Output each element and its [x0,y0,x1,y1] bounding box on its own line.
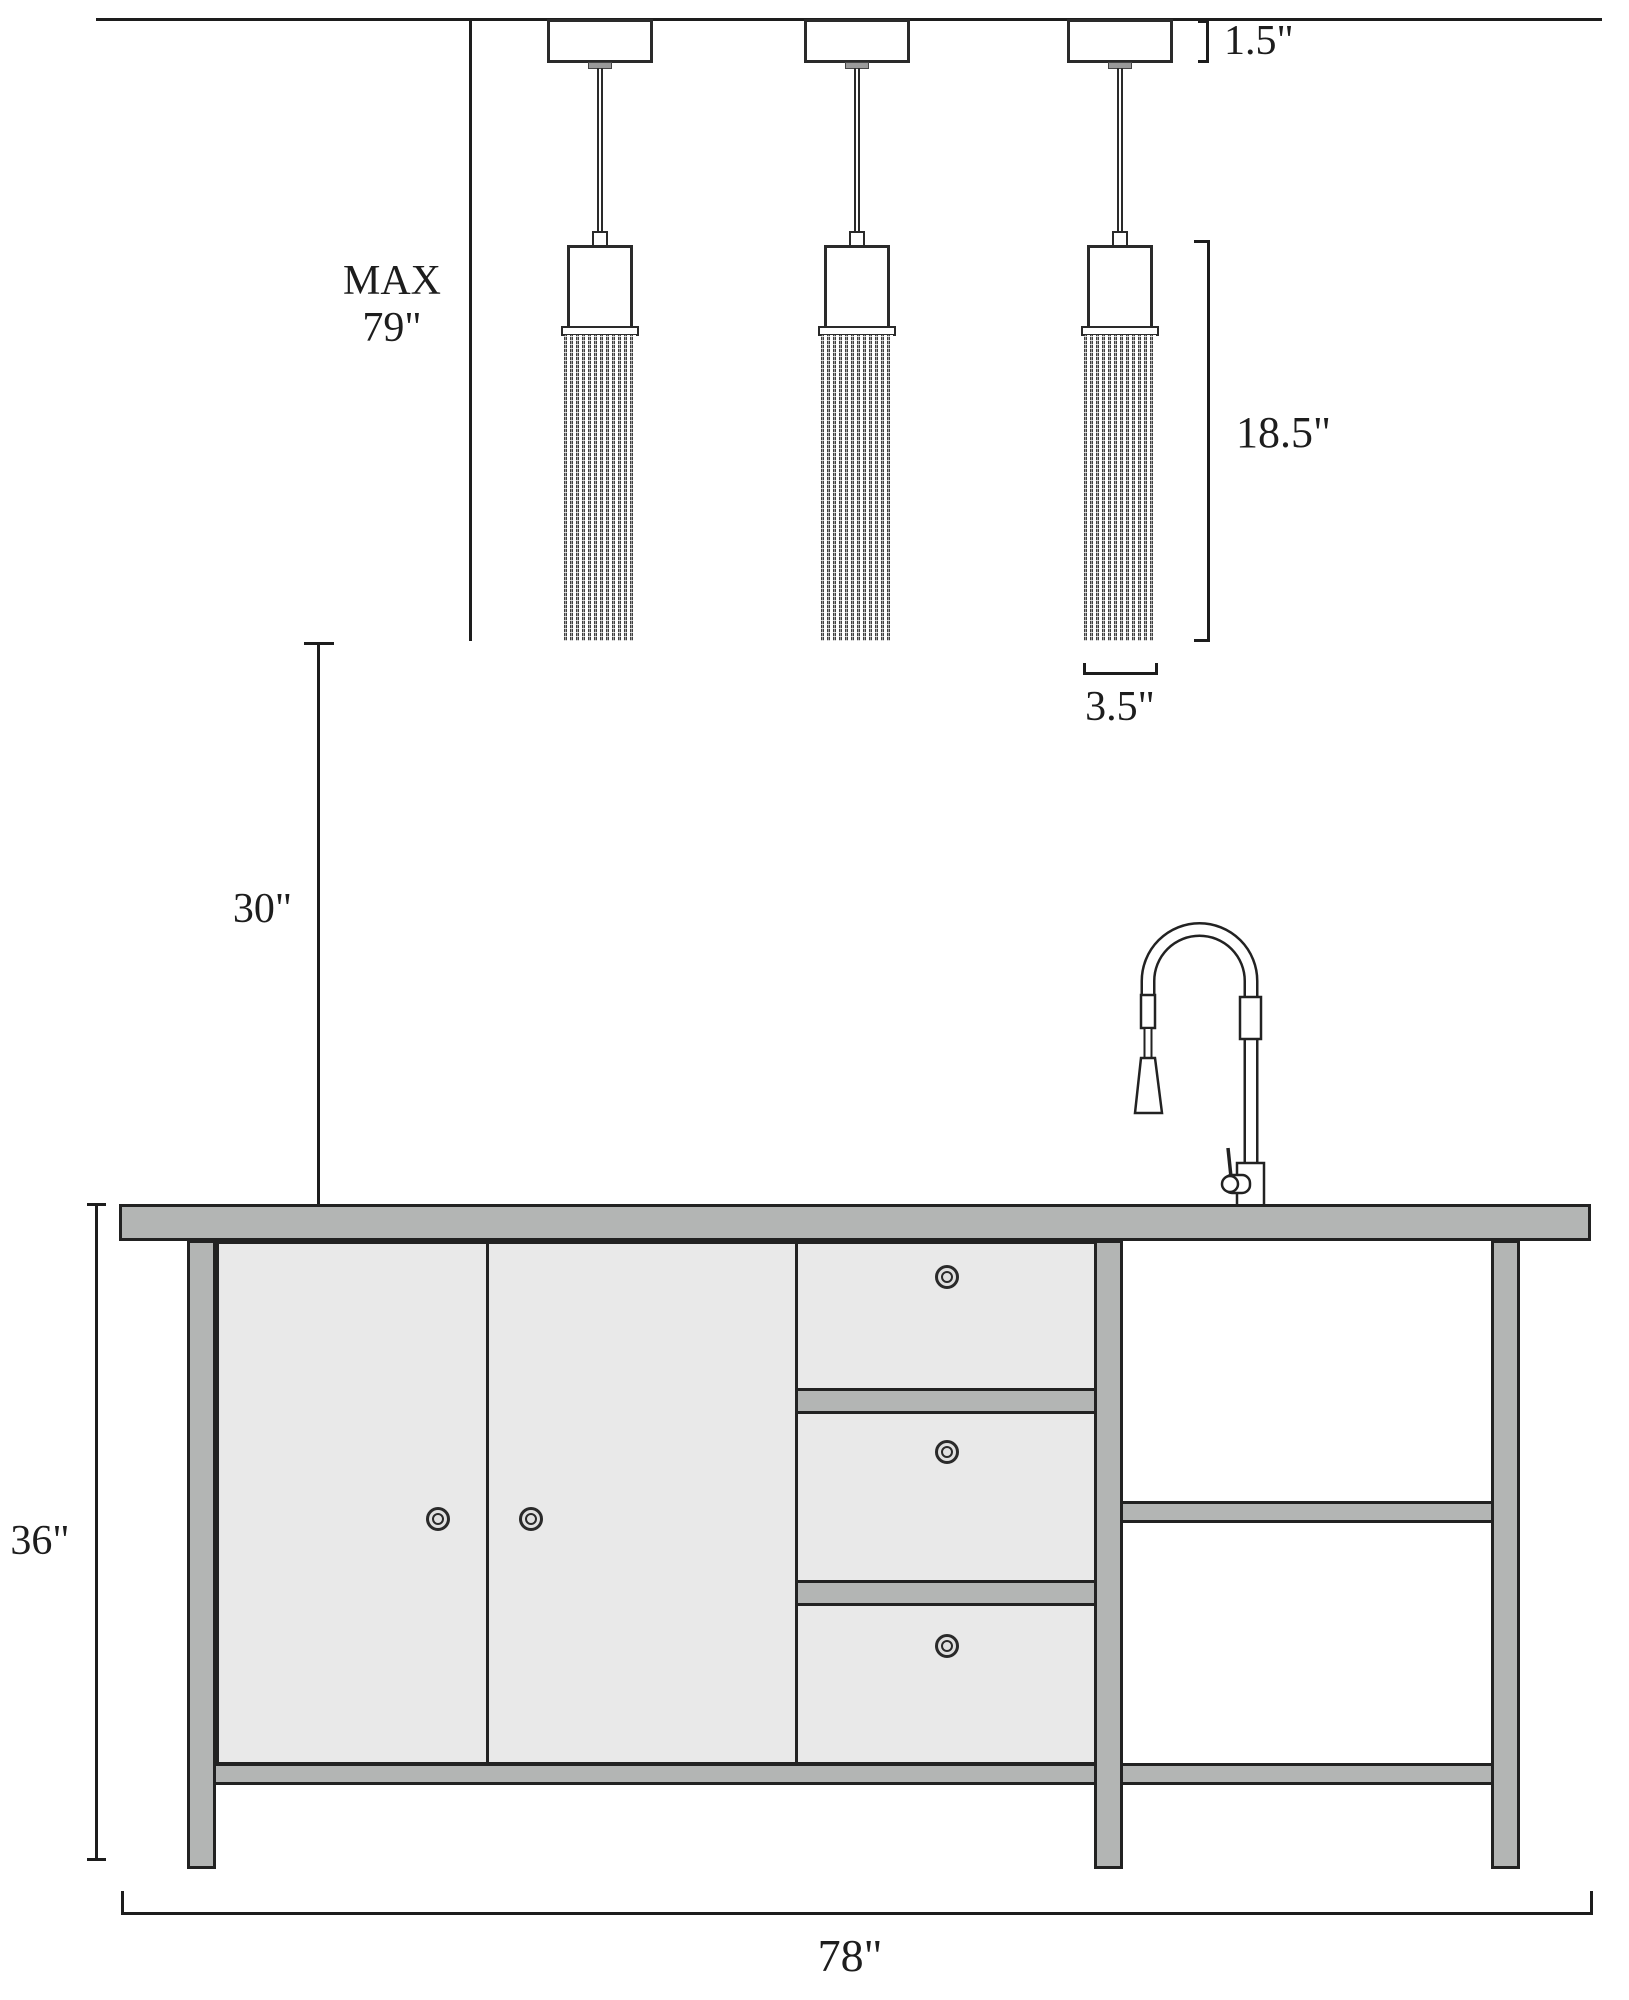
island-height-line [95,1204,98,1861]
pendant-body [1087,245,1153,329]
pendant-shade-fringe [564,335,636,641]
island-width-label: 78" [780,1930,920,1982]
max-drop-label-line2: 79" [332,305,452,352]
canopy-height-label: 1.5" [1224,18,1294,65]
clearance-line [317,643,320,1205]
shade-height-label: 18.5" [1236,408,1331,457]
pendant-shade-fringe [1084,335,1156,641]
faucet-handle-cap [1222,1176,1238,1192]
pendant-canopy [547,19,653,63]
faucet-spray-head [1135,1058,1162,1113]
leg-right-center [1094,1240,1123,1869]
island-width-bracket [121,1891,1593,1915]
door-knob-right [519,1507,543,1531]
faucet-collar-left [1141,995,1155,1028]
max-drop-line [469,19,472,641]
shade-width-label: 3.5" [1060,684,1180,731]
cabinet-door-right [486,1241,798,1765]
pendant-body [567,245,633,329]
drawer-knob-middle-inner [941,1446,953,1458]
dimension-drawing: 1.5" MAX 79" 18.5" 3.5" 30" [0,0,1629,2000]
bottom-stretcher [205,1763,1505,1785]
pendant-canopy [1067,19,1173,63]
drawer-middle [795,1411,1097,1583]
drawer-knob-top [935,1265,959,1289]
leg-right-outer [1491,1240,1520,1869]
island-height-tick-bottom [87,1858,106,1861]
drawer-top [795,1241,1097,1391]
drawer-knob-bottom-inner [941,1640,953,1652]
drawer-knob-middle [935,1440,959,1464]
faucet [1120,915,1300,1210]
shelf-rail [1108,1501,1506,1523]
pendant-cord [1117,68,1123,232]
pendant-cord [854,68,860,232]
canopy-height-bracket [1198,20,1209,63]
pendant-cord [597,68,603,232]
faucet-lever [1228,1148,1231,1177]
door-knob-left [426,1507,450,1531]
max-drop-label: MAX 79" [332,258,452,352]
countertop [119,1204,1591,1241]
drawer-bottom [795,1603,1097,1765]
pendant-canopy [804,19,910,63]
drawer-knob-top-inner [941,1271,953,1283]
shade-height-bracket [1194,240,1210,642]
faucet-collar-right [1240,997,1261,1039]
door-knob-left-inner [432,1513,444,1525]
max-drop-label-line1: MAX [332,258,452,305]
faucet-hose [1145,1028,1152,1058]
island-height-label: 36" [4,1518,76,1565]
leg-left [187,1240,216,1869]
shade-width-bracket [1083,663,1158,675]
cabinet-door-left [216,1241,489,1765]
clearance-label: 30" [192,886,292,933]
drawer-knob-bottom [935,1634,959,1658]
pendant-body [824,245,890,329]
pendant-shade-fringe [821,335,893,641]
door-knob-right-inner [525,1513,537,1525]
